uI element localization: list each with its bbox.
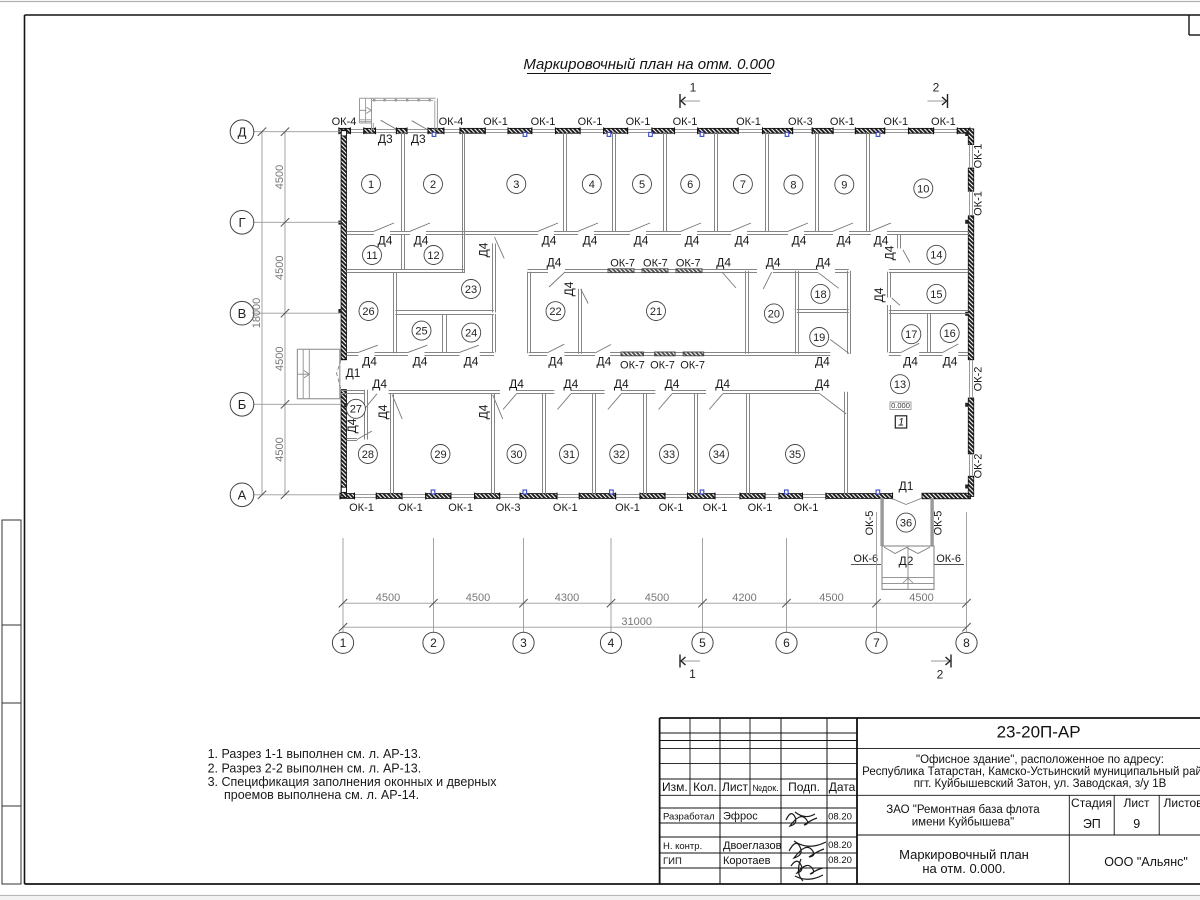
- svg-text:Д4: Д4: [903, 355, 918, 369]
- svg-text:08.20: 08.20: [828, 840, 852, 851]
- svg-text:Д1: Д1: [346, 366, 361, 380]
- svg-text:Д4: Д4: [816, 256, 831, 270]
- svg-text:20: 20: [768, 308, 780, 320]
- svg-text:30: 30: [510, 449, 522, 461]
- svg-text:ОК-1: ОК-1: [973, 144, 985, 169]
- svg-text:10: 10: [917, 183, 929, 195]
- svg-text:9: 9: [1133, 817, 1140, 831]
- svg-text:16: 16: [944, 328, 956, 340]
- svg-text:№док.: №док.: [752, 783, 778, 793]
- svg-text:пгт. Куйбышевский Затон, ул. З: пгт. Куйбышевский Затон, ул. Заводская, …: [914, 778, 1167, 790]
- svg-text:Д4: Д4: [766, 256, 781, 270]
- svg-text:4500: 4500: [909, 592, 933, 604]
- svg-text:ОК-5: ОК-5: [864, 511, 876, 536]
- svg-text:Д4: Д4: [414, 234, 429, 248]
- svg-text:Д4: Д4: [874, 234, 889, 248]
- svg-text:18000: 18000: [251, 298, 263, 329]
- svg-text:Дата: Дата: [829, 780, 856, 794]
- svg-text:12: 12: [427, 250, 439, 262]
- svg-text:Д2: Д2: [899, 554, 914, 568]
- svg-text:27: 27: [350, 404, 362, 416]
- svg-text:4: 4: [608, 636, 615, 650]
- svg-text:Д4: Д4: [596, 355, 611, 369]
- svg-text:проемов выполнена см. л. АР-14: проемов выполнена см. л. АР-14.: [224, 788, 419, 802]
- svg-text:8: 8: [963, 636, 970, 650]
- svg-text:ОК-1: ОК-1: [626, 116, 651, 128]
- svg-text:4500: 4500: [645, 592, 669, 604]
- svg-text:"Офисное здание", расположенно: "Офисное здание", расположенное по адрес…: [916, 754, 1164, 766]
- svg-text:ОК-1: ОК-1: [531, 116, 556, 128]
- svg-text:6: 6: [687, 179, 693, 191]
- svg-text:ОК-1: ОК-1: [483, 116, 508, 128]
- svg-text:18: 18: [814, 289, 826, 301]
- svg-text:4500: 4500: [274, 346, 286, 370]
- svg-text:31: 31: [563, 449, 575, 461]
- svg-text:Д4: Д4: [815, 377, 830, 391]
- svg-text:ОК-1: ОК-1: [615, 502, 640, 514]
- svg-text:Д4: Д4: [464, 355, 479, 369]
- svg-text:ОК-7: ОК-7: [676, 258, 701, 270]
- svg-text:Д4: Д4: [716, 256, 731, 270]
- svg-text:Д4: Д4: [715, 377, 730, 391]
- svg-text:1: 1: [690, 81, 697, 95]
- svg-text:ОК-3: ОК-3: [496, 502, 521, 514]
- svg-text:ОК-7: ОК-7: [620, 360, 645, 372]
- svg-text:11: 11: [366, 250, 377, 262]
- svg-text:Изм.: Изм.: [662, 780, 688, 794]
- svg-text:ОК-1: ОК-1: [398, 502, 423, 514]
- svg-text:2: 2: [430, 636, 437, 650]
- svg-text:4500: 4500: [274, 437, 286, 461]
- svg-text:4200: 4200: [732, 592, 756, 604]
- svg-text:4500: 4500: [274, 255, 286, 279]
- svg-text:29: 29: [434, 449, 446, 461]
- svg-text:ЗАО "Ремонтная база флота: ЗАО "Ремонтная база флота: [886, 804, 1040, 816]
- svg-text:ОК-3: ОК-3: [788, 116, 813, 128]
- svg-text:Д4: Д4: [378, 234, 393, 248]
- svg-text:19: 19: [813, 332, 825, 344]
- svg-text:24: 24: [465, 327, 477, 339]
- svg-text:3: 3: [513, 179, 519, 191]
- svg-text:Д4: Д4: [562, 281, 576, 296]
- svg-text:1: 1: [898, 416, 904, 428]
- svg-text:6: 6: [783, 636, 790, 650]
- svg-text:Д3: Д3: [411, 132, 426, 146]
- svg-text:А: А: [238, 487, 247, 502]
- svg-text:ОК-7: ОК-7: [650, 360, 675, 372]
- svg-text:имени Куйбышева": имени Куйбышева": [912, 817, 1015, 829]
- svg-text:Г: Г: [238, 215, 245, 230]
- svg-text:9: 9: [841, 179, 847, 191]
- svg-text:Д4: Д4: [792, 234, 807, 248]
- svg-text:ОК-1: ОК-1: [931, 116, 956, 128]
- svg-text:ОК-1: ОК-1: [703, 502, 728, 514]
- svg-text:22: 22: [549, 306, 561, 318]
- svg-text:8: 8: [790, 179, 796, 191]
- svg-text:34: 34: [713, 449, 725, 461]
- svg-text:Д4: Д4: [362, 355, 377, 369]
- svg-text:15: 15: [930, 289, 942, 301]
- svg-text:ОК-1: ОК-1: [748, 502, 773, 514]
- svg-text:Листов: Листов: [1164, 796, 1200, 810]
- svg-text:3. Спецификация заполнения око: 3. Спецификация заполнения оконных и две…: [208, 775, 498, 789]
- svg-text:ООО "Альянс": ООО "Альянс": [1104, 855, 1188, 869]
- svg-text:ОК-6: ОК-6: [936, 553, 961, 565]
- svg-text:4500: 4500: [376, 592, 400, 604]
- svg-text:2: 2: [430, 179, 436, 191]
- svg-text:ГИП: ГИП: [663, 856, 682, 867]
- svg-text:Д4: Д4: [634, 234, 649, 248]
- svg-text:Маркировочный план: Маркировочный план: [899, 847, 1029, 862]
- svg-text:Д4: Д4: [583, 234, 598, 248]
- svg-text:2: 2: [933, 81, 940, 95]
- svg-text:Д4: Д4: [376, 404, 390, 419]
- svg-text:1. Разрез 1-1 выполнен см. л.: 1. Разрез 1-1 выполнен см. л. АР-13.: [208, 747, 422, 761]
- svg-text:13: 13: [894, 379, 906, 391]
- svg-text:ОК-5: ОК-5: [933, 511, 945, 536]
- svg-text:Д4: Д4: [477, 404, 491, 419]
- svg-text:Стадия: Стадия: [1071, 796, 1112, 810]
- svg-text:ОК-1: ОК-1: [659, 502, 684, 514]
- svg-text:Д4: Д4: [614, 377, 629, 391]
- svg-text:Разработал: Разработал: [663, 812, 715, 823]
- svg-text:Д4: Д4: [477, 242, 491, 257]
- svg-text:23-20П-АР: 23-20П-АР: [997, 723, 1081, 742]
- svg-text:Двоеглазов: Двоеглазов: [723, 840, 782, 852]
- svg-text:Д4: Д4: [837, 234, 852, 248]
- svg-text:36: 36: [900, 517, 912, 529]
- svg-text:на отм. 0.000.: на отм. 0.000.: [922, 861, 1005, 876]
- svg-text:ОК-1: ОК-1: [553, 502, 578, 514]
- svg-text:Д4: Д4: [509, 377, 524, 391]
- svg-text:21: 21: [650, 306, 662, 318]
- svg-text:31000: 31000: [621, 616, 652, 628]
- svg-text:2: 2: [937, 668, 944, 682]
- svg-text:Республика Татарстан, Камско-У: Республика Татарстан, Камско-Устьинский …: [862, 766, 1200, 778]
- svg-text:Маркировочный план на отм. 0.0: Маркировочный план на отм. 0.000: [523, 56, 775, 73]
- svg-text:14: 14: [930, 250, 942, 262]
- svg-text:Д3: Д3: [378, 132, 393, 146]
- svg-text:4300: 4300: [555, 592, 579, 604]
- svg-text:25: 25: [415, 325, 427, 337]
- svg-text:4: 4: [589, 179, 595, 191]
- svg-text:ОК-1: ОК-1: [349, 502, 374, 514]
- svg-text:17: 17: [905, 329, 917, 341]
- svg-text:5: 5: [699, 636, 706, 650]
- svg-text:2. Разрез 2-2 выполнен см. л.: 2. Разрез 2-2 выполнен см. л. АР-13.: [208, 762, 422, 776]
- svg-text:Д4: Д4: [735, 234, 750, 248]
- svg-text:ОК-1: ОК-1: [736, 116, 761, 128]
- svg-text:Д4: Д4: [665, 377, 680, 391]
- svg-text:ОК-1: ОК-1: [578, 116, 603, 128]
- svg-text:Д: Д: [238, 124, 247, 139]
- svg-text:Коротаев: Коротаев: [723, 855, 771, 867]
- svg-text:ОК-1: ОК-1: [448, 502, 473, 514]
- svg-text:ЭП: ЭП: [1083, 817, 1101, 831]
- svg-text:ОК-4: ОК-4: [332, 116, 357, 128]
- svg-text:Д4: Д4: [345, 418, 359, 433]
- svg-text:08.20: 08.20: [828, 812, 852, 823]
- svg-text:ОК-2: ОК-2: [973, 367, 985, 392]
- svg-text:ОК-1: ОК-1: [673, 116, 698, 128]
- svg-text:Д4: Д4: [542, 234, 557, 248]
- svg-text:ОК-7: ОК-7: [680, 360, 705, 372]
- svg-text:23: 23: [465, 284, 477, 296]
- svg-text:Д4: Д4: [883, 245, 897, 260]
- svg-text:ОК-2: ОК-2: [973, 454, 985, 479]
- svg-text:Подп.: Подп.: [788, 780, 820, 794]
- svg-text:Д4: Д4: [548, 355, 563, 369]
- svg-text:35: 35: [789, 449, 801, 461]
- svg-text:5: 5: [639, 179, 645, 191]
- svg-text:Д4: Д4: [685, 234, 700, 248]
- svg-text:3: 3: [520, 636, 527, 650]
- svg-text:ОК-6: ОК-6: [853, 553, 878, 565]
- svg-text:28: 28: [362, 449, 374, 461]
- svg-text:32: 32: [613, 449, 625, 461]
- svg-text:Лист: Лист: [1123, 796, 1150, 810]
- svg-text:Д4: Д4: [815, 355, 830, 369]
- svg-text:33: 33: [663, 449, 675, 461]
- svg-text:1: 1: [689, 667, 696, 681]
- svg-text:Д4: Д4: [872, 287, 886, 302]
- svg-text:Д4: Д4: [943, 355, 958, 369]
- svg-text:Д4: Д4: [372, 377, 387, 391]
- svg-text:4500: 4500: [466, 592, 490, 604]
- svg-text:ОК-1: ОК-1: [883, 116, 908, 128]
- svg-text:ОК-7: ОК-7: [643, 258, 668, 270]
- svg-text:ОК-4: ОК-4: [439, 116, 464, 128]
- svg-text:4500: 4500: [819, 592, 843, 604]
- svg-text:В: В: [238, 306, 247, 321]
- svg-text:Д4: Д4: [547, 256, 562, 270]
- svg-text:1: 1: [340, 636, 347, 650]
- svg-text:1: 1: [368, 179, 374, 191]
- svg-text:Лист: Лист: [722, 780, 749, 794]
- svg-text:ОК-1: ОК-1: [794, 502, 819, 514]
- svg-text:Кол.: Кол.: [693, 780, 717, 794]
- svg-text:0.000: 0.000: [891, 401, 910, 410]
- svg-text:4500: 4500: [274, 165, 286, 189]
- svg-text:Н. контр.: Н. контр.: [663, 841, 702, 852]
- svg-text:ОК-1: ОК-1: [973, 191, 985, 216]
- svg-text:7: 7: [740, 179, 746, 191]
- svg-text:Д1: Д1: [899, 479, 914, 493]
- svg-text:Б: Б: [238, 397, 247, 412]
- svg-text:08.20: 08.20: [828, 855, 852, 866]
- svg-text:Эфрос: Эфрос: [723, 811, 758, 823]
- svg-text:Д4: Д4: [413, 355, 428, 369]
- svg-text:Д4: Д4: [563, 377, 578, 391]
- svg-text:ОК-7: ОК-7: [610, 258, 635, 270]
- svg-text:ОК-1: ОК-1: [830, 116, 855, 128]
- svg-text:26: 26: [362, 306, 374, 318]
- svg-text:7: 7: [873, 636, 880, 650]
